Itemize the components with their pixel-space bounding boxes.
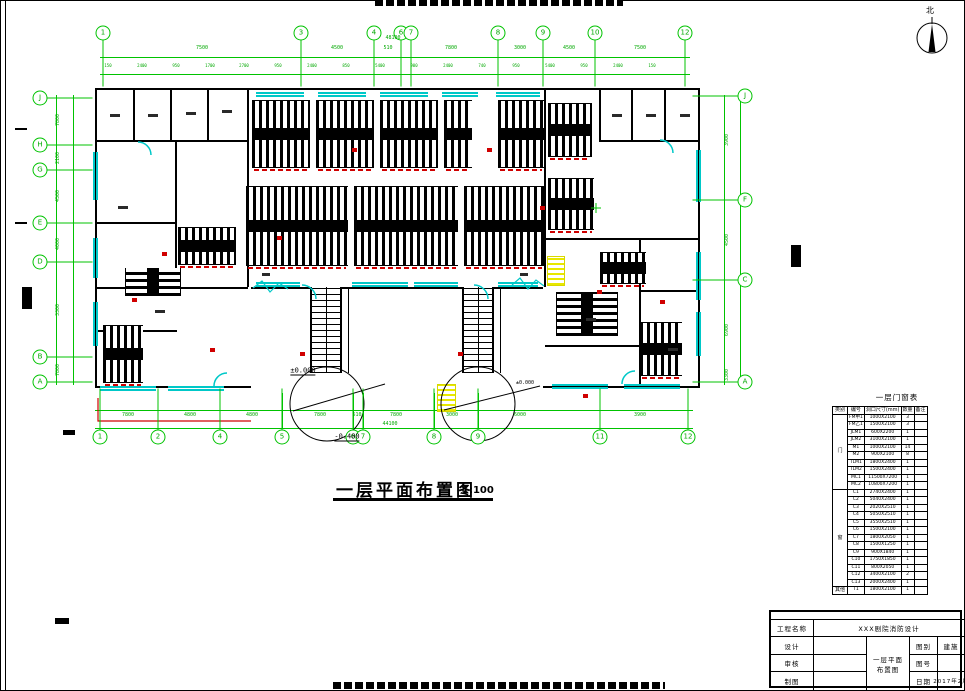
sheet-inner-border	[5, 0, 6, 691]
schedule-row: TLM11800X24001	[833, 459, 928, 467]
dimension-text: 2100	[55, 152, 61, 164]
schedule-cell	[914, 467, 927, 475]
drafter-label: 制图	[771, 671, 813, 690]
window-strip	[496, 92, 540, 97]
wall-segment	[664, 90, 666, 140]
schedule-cell: C3	[848, 504, 865, 512]
schedule-cell: 1	[901, 429, 914, 437]
schedule-cell	[914, 422, 927, 430]
schedule-cell: JLM1	[848, 429, 865, 437]
schedule-cell: C6	[848, 527, 865, 535]
schedule-header: 洞口尺寸(mm)	[864, 407, 901, 415]
schedule-cell	[914, 437, 927, 445]
schedule-cell	[914, 504, 927, 512]
schedule-cell	[914, 587, 927, 595]
schedule-cell: 1500X2100	[864, 422, 901, 430]
schedule-cell: 10800X7200	[864, 482, 901, 490]
dimension-text: 5400	[375, 63, 385, 69]
schedule-cell: C2	[848, 497, 865, 505]
schedule-row: JLM23100X21001	[833, 437, 928, 445]
date-value: 2017年2月	[937, 671, 964, 690]
schedule-row: C71800X20501	[833, 534, 928, 542]
margin-stamp	[55, 618, 69, 624]
dimension-text: 510	[383, 45, 392, 51]
dimension-text: 150	[104, 63, 111, 69]
shelf-group	[548, 178, 594, 230]
schedule-cell: 1	[901, 557, 914, 565]
room-label	[680, 114, 690, 117]
schedule-cell: 8	[901, 452, 914, 460]
wall-segment	[207, 90, 209, 140]
schedule-row: M2900X21008	[833, 452, 928, 460]
schedule-cell	[914, 549, 927, 557]
dimension-text: 950	[274, 63, 281, 69]
elevation-label: ±0.000	[516, 380, 534, 386]
schedule-header: 类别	[833, 407, 848, 415]
window-strip	[414, 282, 458, 287]
grid-bubble: 5	[275, 430, 290, 445]
room-label	[586, 318, 596, 321]
dim-line	[100, 74, 690, 75]
dimension-text: 7500	[196, 45, 208, 51]
shelf-group	[354, 186, 458, 266]
schedule-row: C61500X21001	[833, 527, 928, 535]
schedule-cell: C11	[848, 564, 865, 572]
fire-mark	[597, 290, 602, 294]
dimension-text: 7800	[390, 412, 402, 418]
shelf-group	[316, 100, 374, 168]
schedule-cell: M1	[848, 444, 865, 452]
room-label	[520, 273, 528, 276]
schedule-cell: C12	[848, 572, 865, 580]
room-label	[186, 112, 196, 115]
schedule-header: 数量	[901, 407, 914, 415]
project-name-label: 工程名称	[771, 619, 813, 636]
schedule-row: MC111500X72001	[833, 474, 928, 482]
grid-bubble: 1	[93, 430, 108, 445]
schedule-cell: 1	[901, 459, 914, 467]
stair	[310, 287, 342, 373]
grid-bubble: 4	[213, 430, 228, 445]
grid-bubble: 2	[151, 430, 166, 445]
schedule-cell: 1	[901, 482, 914, 490]
grid-bubble: A	[738, 375, 753, 390]
schedule-cell: C8	[848, 542, 865, 550]
schedule-cell: FM甲1	[848, 414, 865, 422]
dimension-text: 48100	[385, 35, 400, 41]
schedule-cell	[914, 512, 927, 520]
dimension-text: 7500	[634, 45, 646, 51]
highlighted-steps	[547, 256, 565, 286]
schedule-cell: MC1	[848, 474, 865, 482]
dimension-text: 4500	[563, 45, 575, 51]
schedule-cell: C1	[848, 489, 865, 497]
shelf-group	[246, 186, 348, 266]
fire-mark	[352, 148, 357, 152]
dim-line	[95, 428, 693, 429]
window-strip	[624, 384, 680, 389]
window-strip	[93, 302, 98, 346]
schedule-title: 一层门窗表	[832, 392, 962, 403]
stair-dim-line	[500, 287, 501, 373]
schedule-row: C132000X24001	[833, 579, 928, 587]
wall-segment	[170, 90, 172, 140]
schedule-cell: 1	[901, 542, 914, 550]
room-label	[668, 348, 678, 351]
checker-value	[813, 654, 866, 671]
wall-segment	[97, 222, 177, 224]
margin-stamp	[22, 287, 32, 309]
grid-bubble: 9	[536, 26, 551, 41]
grid-bubble: H	[33, 138, 48, 153]
window-strip	[352, 282, 408, 287]
schedule-row: C25040X24001	[833, 497, 928, 505]
dimension-text: 850	[342, 63, 349, 69]
schedule-cell	[914, 474, 927, 482]
designer-label: 设计	[771, 636, 813, 654]
dimension-text: 5400	[545, 63, 555, 69]
schedule-cell	[914, 497, 927, 505]
schedule-cell: 1500X2400	[864, 467, 901, 475]
shelf-group	[380, 100, 438, 168]
window-strip	[256, 282, 300, 287]
dim-line	[73, 95, 74, 385]
margin-stamp	[15, 222, 27, 224]
room-label	[110, 114, 120, 117]
schedule-cell: 1800X2050	[864, 534, 901, 542]
dimension-text: 6000	[514, 412, 526, 418]
dimension-text: 44100	[382, 421, 397, 427]
schedule-cell: 1750X1850	[864, 557, 901, 565]
dimension-text: 1700	[205, 63, 215, 69]
grid-bubble: G	[33, 163, 48, 178]
dimension-text: 7800	[55, 114, 61, 126]
wall-segment	[175, 140, 177, 287]
fire-mark	[487, 148, 492, 152]
schedule-row: C9900X18401	[833, 549, 928, 557]
grid-bubble: J	[738, 89, 753, 104]
grid-bubble: E	[33, 216, 48, 231]
wall-segment	[544, 90, 546, 287]
dimension-text: 2400	[137, 63, 147, 69]
schedule-table: 类别编号洞口尺寸(mm)数量备注 门FM甲11000X21003FM乙11500…	[832, 406, 928, 595]
dimension-text: 3000	[446, 412, 458, 418]
dimension-text: 7800	[55, 364, 61, 376]
schedule-row: C11800X20501	[833, 564, 928, 572]
dimension-text: 950	[172, 63, 179, 69]
drawing-no-label: 图号	[909, 654, 937, 671]
schedule-cell: C7	[848, 534, 865, 542]
schedule-cell: C13	[848, 579, 865, 587]
schedule-cell	[914, 572, 927, 580]
wall-segment	[97, 140, 248, 142]
drawing-name-cell: 一层平面 布置图	[866, 636, 909, 690]
drawing-type-value: 建施	[937, 636, 964, 654]
window-strip	[168, 386, 224, 391]
grid-bubble: 9	[471, 430, 486, 445]
schedule-cell: 5040X2400	[864, 497, 901, 505]
dimension-text: 2400	[443, 63, 453, 69]
designer-value	[813, 636, 866, 654]
fire-mark	[540, 206, 545, 210]
schedule-row: FM乙11500X21003	[833, 422, 928, 430]
schedule-cell	[914, 452, 927, 460]
fire-mark	[277, 236, 282, 240]
fire-mark	[583, 394, 588, 398]
schedule-cell: 1	[901, 489, 914, 497]
room-label	[118, 206, 128, 209]
window-strip	[696, 150, 701, 202]
schedule-cell	[914, 414, 927, 422]
grid-bubble: 7	[404, 26, 419, 41]
schedule-row: C81500X12501	[833, 542, 928, 550]
schedule-cell: 1	[901, 534, 914, 542]
schedule-cell: T1	[848, 587, 865, 595]
window-strip	[100, 386, 156, 391]
dimension-text: 950	[512, 63, 519, 69]
schedule-cell: 2000X2400	[864, 579, 901, 587]
schedule-cell: 1	[901, 497, 914, 505]
wall-segment	[640, 290, 698, 292]
dimension-text: 950	[580, 63, 587, 69]
dim-line	[740, 95, 741, 385]
dimension-text: 3900	[634, 412, 646, 418]
schedule-row: C32020X25101	[833, 504, 928, 512]
schedule-cell: JLM2	[848, 437, 865, 445]
schedule-row: TLM21500X24001	[833, 467, 928, 475]
titleblock-partial-row	[771, 612, 964, 619]
schedule-cell	[914, 557, 927, 565]
schedule-cell: 600X2200	[864, 429, 901, 437]
schedule-cell: 1	[901, 474, 914, 482]
schedule-cell	[914, 564, 927, 572]
schedule-cell: 3400X2100	[864, 572, 901, 580]
schedule-row: C101750X18501	[833, 557, 928, 565]
schedule-cell: 3	[901, 414, 914, 422]
schedule-cell: M2	[848, 452, 865, 460]
shelf-group	[464, 186, 544, 266]
schedule-cell: 1000X2100	[864, 414, 901, 422]
schedule-row: JLM1600X22001	[833, 429, 928, 437]
schedule-cell: 1	[901, 467, 914, 475]
shelf-group	[252, 100, 310, 168]
window-strip	[498, 282, 538, 287]
schedule-cell: 1	[901, 437, 914, 445]
wall-segment	[599, 90, 601, 142]
dimension-text: 740	[478, 63, 485, 69]
schedule-cell: 3550X2510	[864, 519, 901, 527]
stair-dim-line	[348, 287, 349, 373]
wall-segment	[545, 345, 641, 347]
schedule-cell	[914, 527, 927, 535]
schedule-cell: TLM1	[848, 459, 865, 467]
schedule-header: 编号	[848, 407, 865, 415]
dimension-text: 4800	[246, 412, 258, 418]
schedule-cell: 900X2100	[864, 452, 901, 460]
grid-bubble: 10	[588, 26, 603, 41]
schedule-category: 门	[833, 414, 848, 489]
window-strip	[380, 92, 428, 97]
dimension-text: 4500	[724, 234, 730, 246]
grid-bubble: 12	[681, 430, 696, 445]
shelf-group	[444, 100, 472, 168]
grid-bubble: J	[33, 91, 48, 106]
dimension-text: 2700	[239, 63, 249, 69]
schedule-cell	[914, 534, 927, 542]
room-label	[612, 114, 622, 117]
grid-bubble: 8	[491, 26, 506, 41]
drawing-no-value	[937, 654, 964, 671]
dimension-text: 900	[410, 63, 417, 69]
margin-stamp	[63, 430, 75, 435]
schedule-cell	[914, 579, 927, 587]
schedule-cell: 1800X2100	[864, 587, 901, 595]
fire-mark	[132, 298, 137, 302]
dimension-text: 2400	[613, 63, 623, 69]
dimension-text: 4800	[184, 412, 196, 418]
grid-bubble: F	[738, 193, 753, 208]
dimension-text: 4000	[55, 238, 61, 250]
schedule-cell: 800X2050	[864, 564, 901, 572]
schedule: 一层门窗表 类别编号洞口尺寸(mm)数量备注 门FM甲11000X21003FM…	[832, 392, 962, 595]
dimension-text: 3900	[724, 134, 730, 146]
stair	[462, 287, 494, 373]
schedule-row: 窗C12740X24001	[833, 489, 928, 497]
window-strip	[256, 92, 304, 97]
room-label	[148, 114, 158, 117]
wall-segment	[631, 90, 633, 140]
schedule-cell: 900X1840	[864, 549, 901, 557]
grid-bubble: 8	[427, 430, 442, 445]
elevation-label: -0.400	[334, 433, 359, 442]
drawing-name-line1: 一层平面	[873, 654, 903, 664]
fire-mark	[210, 348, 215, 352]
dimension-text: 510	[352, 412, 361, 418]
dimension-text: 6900	[724, 324, 730, 336]
schedule-cell: 1	[901, 527, 914, 535]
fire-mark	[300, 352, 305, 356]
dimension-text: 7800	[314, 412, 326, 418]
schedule-cell: 1	[901, 587, 914, 595]
shelf-group	[498, 100, 544, 168]
schedule-cell: 1	[901, 579, 914, 587]
shelf-group	[178, 227, 236, 265]
schedule-cell: 2020X2510	[864, 504, 901, 512]
cad-sheet: { "page": { "green": "#00c300", "cyan": …	[0, 0, 965, 691]
schedule-cell: C10	[848, 557, 865, 565]
highlighted-steps	[437, 384, 456, 412]
drawing-scale: 1:100	[462, 485, 494, 496]
schedule-row: 其他T11800X21001	[833, 587, 928, 595]
margin-stamp	[791, 245, 801, 267]
schedule-cell: 1500X1250	[864, 542, 901, 550]
room-label	[646, 114, 656, 117]
cropped-text-bottom	[333, 682, 665, 689]
schedule-cell: C4	[848, 512, 865, 520]
schedule-cell: 1	[901, 549, 914, 557]
schedule-cell: 3	[901, 422, 914, 430]
fire-mark	[660, 300, 665, 304]
schedule-cell: TLM2	[848, 467, 865, 475]
schedule-cell: 1	[901, 512, 914, 520]
schedule-cell: C5	[848, 519, 865, 527]
schedule-cell: 1	[901, 504, 914, 512]
window-strip	[696, 252, 701, 300]
dim-line	[100, 57, 690, 58]
window-strip	[696, 312, 701, 356]
shelf-group	[125, 268, 181, 296]
dimension-text: 3300	[724, 369, 730, 381]
schedule-cell: 1500X2100	[864, 527, 901, 535]
grid-bubble: D	[33, 255, 48, 270]
schedule-cell: 14	[901, 444, 914, 452]
room-label	[222, 110, 232, 113]
dimension-text: 3000	[514, 45, 526, 51]
elevation-label: ±0.000	[290, 367, 315, 376]
window-strip	[318, 92, 366, 97]
schedule-cell	[914, 429, 927, 437]
grid-bubble: 4	[367, 26, 382, 41]
schedule-cell: C9	[848, 549, 865, 557]
dimension-text: 2400	[307, 63, 317, 69]
schedule-cell: MC2	[848, 482, 865, 490]
schedule-cell: 3100X2100	[864, 437, 901, 445]
schedule-cell: 1	[901, 564, 914, 572]
north-label: 北	[926, 5, 934, 16]
schedule-cell	[914, 459, 927, 467]
schedule-header: 备注	[914, 407, 927, 415]
dimension-text: 7800	[122, 412, 134, 418]
cropped-text-top	[375, 0, 623, 6]
title-underline	[333, 498, 493, 501]
grid-bubble: 12	[678, 26, 693, 41]
schedule-cell	[914, 482, 927, 490]
grid-bubble: C	[738, 273, 753, 288]
schedule-cell: FM乙1	[848, 422, 865, 430]
margin-stamp	[15, 128, 27, 130]
window-strip	[442, 92, 478, 97]
schedule-row: M11000X210014	[833, 444, 928, 452]
drawing-name-line2: 布置图	[877, 664, 900, 674]
schedule-row: C45050X25101	[833, 512, 928, 520]
dimension-text: 7800	[445, 45, 457, 51]
schedule-cell: 2740X2400	[864, 489, 901, 497]
dimension-text: 4500	[55, 190, 61, 202]
grid-bubble: 11	[593, 430, 608, 445]
schedule-cell: 1800X2400	[864, 459, 901, 467]
schedule-cell: 1000X2100	[864, 444, 901, 452]
shelf-group	[600, 252, 646, 284]
shelf-group	[103, 325, 143, 383]
grid-bubble: B	[33, 350, 48, 365]
grid-bubble: 3	[294, 26, 309, 41]
schedule-row: MC210800X72001	[833, 482, 928, 490]
shelf-group	[556, 292, 618, 336]
schedule-cell	[914, 542, 927, 550]
fire-mark	[458, 352, 463, 356]
room-label	[155, 310, 165, 313]
dimension-text: 3300	[55, 304, 61, 316]
room-label	[262, 273, 270, 276]
schedule-cell: 1	[901, 519, 914, 527]
dimension-text: 150	[648, 63, 655, 69]
dimension-text: 4500	[331, 45, 343, 51]
wall-segment	[599, 140, 698, 142]
wall-segment	[133, 90, 135, 140]
schedule-cell: 2	[901, 572, 914, 580]
title-block: 工程名称 XXX剧院消防设计 设计 审核 制图 一层平面 布置图 图别 建施 图…	[769, 610, 962, 688]
project-name-value: XXX剧院消防设计	[813, 619, 964, 636]
